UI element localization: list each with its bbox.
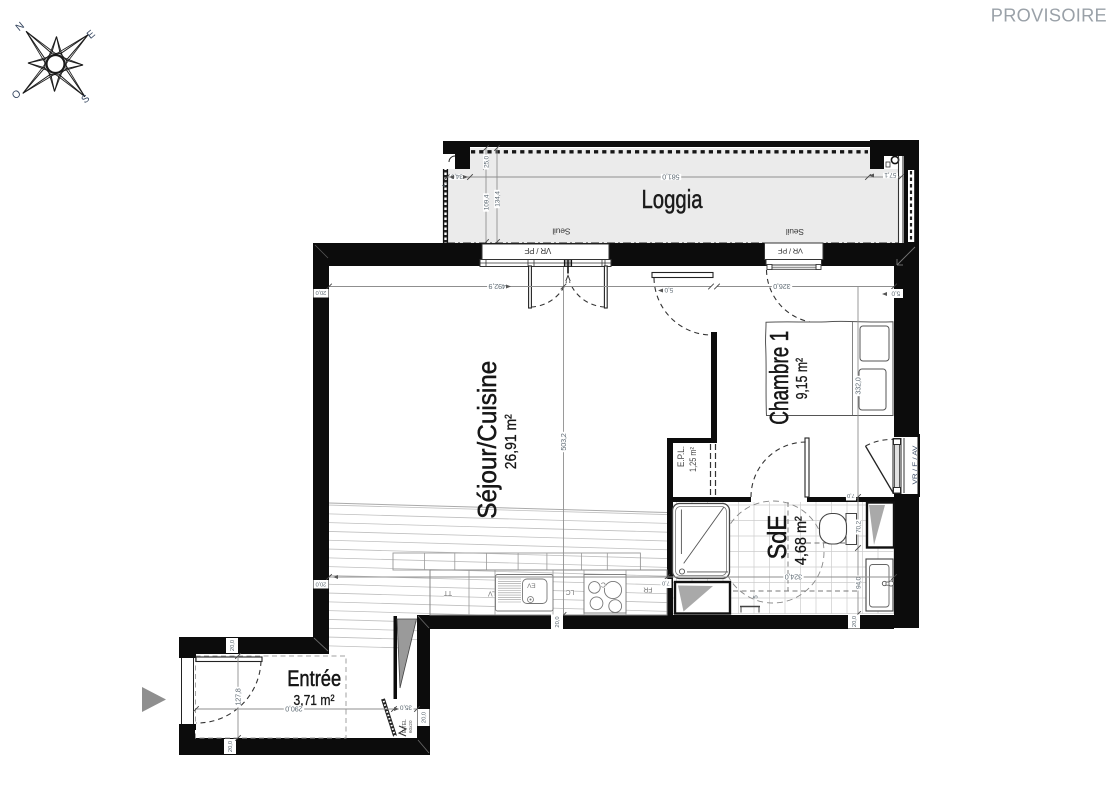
svg-text:492,9: 492,9: [489, 282, 506, 291]
svg-text:109,4: 109,4: [483, 194, 490, 210]
svg-text:60x20: 60x20: [408, 720, 413, 733]
svg-text:9,15 m²: 9,15 m²: [794, 357, 811, 399]
svg-text:127,8: 127,8: [234, 688, 243, 705]
svg-text:20,0: 20,0: [422, 712, 428, 723]
svg-text:20,0: 20,0: [228, 741, 234, 752]
svg-text:25,0: 25,0: [483, 155, 490, 168]
svg-text:7,0: 7,0: [847, 492, 854, 498]
svg-text:290,0: 290,0: [285, 704, 302, 713]
svg-text:Entrée: Entrée: [287, 666, 341, 691]
svg-text:332,0: 332,0: [854, 377, 863, 394]
svg-text:326,0: 326,0: [773, 282, 790, 291]
svg-text:26,91 m²: 26,91 m²: [503, 414, 520, 470]
svg-text:57,1: 57,1: [884, 171, 897, 178]
svg-text:20,0: 20,0: [316, 289, 326, 295]
svg-text:VR / F / AV: VR / F / AV: [912, 445, 919, 485]
svg-text:4,: 4,: [442, 183, 448, 187]
svg-text:4,68 m²: 4,68 m²: [793, 516, 810, 566]
svg-text:1,25 m²: 1,25 m²: [688, 447, 698, 472]
svg-text:581,0: 581,0: [662, 172, 679, 181]
svg-text:5,0: 5,0: [664, 286, 673, 293]
svg-text:35,0: 35,0: [399, 704, 412, 711]
svg-text:Séjour/Cuisine: Séjour/Cuisine: [472, 361, 502, 519]
svg-text:20,0: 20,0: [555, 616, 561, 627]
svg-text:5,0: 5,0: [891, 290, 900, 297]
svg-text:EV: EV: [527, 581, 536, 588]
svg-text:E.P.L.: E.P.L.: [676, 446, 686, 467]
svg-text:VR / PF: VR / PF: [777, 246, 802, 255]
svg-text:VR / PF: VR / PF: [524, 246, 551, 255]
svg-text:503,2: 503,2: [559, 433, 568, 450]
svg-text:134,4: 134,4: [494, 191, 501, 207]
svg-text:PROVISOIRE: PROVISOIRE: [991, 6, 1107, 26]
svg-text:Seuil: Seuil: [786, 227, 804, 237]
svg-text:LC: LC: [566, 588, 575, 595]
svg-text:324,0: 324,0: [785, 572, 802, 581]
svg-text:C: C: [601, 580, 606, 587]
svg-text:94,0: 94,0: [855, 576, 862, 589]
svg-text:Loggia: Loggia: [642, 184, 703, 214]
svg-text:Seuil: Seuil: [552, 226, 570, 236]
svg-text:Chambre 1: Chambre 1: [764, 331, 794, 425]
svg-text:70,2: 70,2: [855, 520, 862, 533]
svg-text:7,0: 7,0: [662, 579, 669, 585]
svg-text:FR: FR: [643, 585, 652, 592]
svg-text:20,0: 20,0: [316, 580, 326, 586]
svg-text:LV: LV: [488, 589, 496, 596]
svg-text:TT: TT: [443, 589, 452, 596]
svg-text:20,0: 20,0: [852, 616, 858, 627]
svg-text:20,0: 20,0: [230, 640, 236, 651]
svg-text:SdE: SdE: [762, 515, 792, 560]
